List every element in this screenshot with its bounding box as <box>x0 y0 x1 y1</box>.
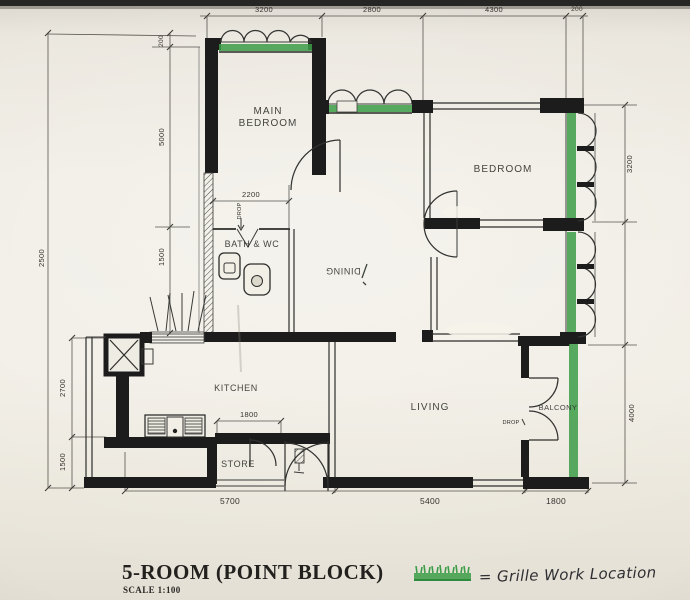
label-bath-wc: BATH & WC <box>225 239 280 249</box>
dim-top-2800: 2800 <box>363 5 381 14</box>
plan-title: 5-ROOM (POINT BLOCK) <box>122 560 384 584</box>
drop-marker-bath: DROP <box>237 202 244 230</box>
room-balcony: BALCONY DROP <box>503 342 578 477</box>
photo-edge <box>0 0 690 9</box>
label-kitchen: KITCHEN <box>214 383 258 393</box>
legend-text: = Grille Work Location <box>479 563 657 586</box>
dim-bottom-5400: 5400 <box>420 496 440 506</box>
dim-top-3200: 3200 <box>255 5 273 14</box>
dimension-left-inner: 200 5000 1500 <box>152 30 200 336</box>
grille-strip-main-bedroom <box>219 44 312 51</box>
dimension-1800-kitchen: 1800 <box>214 410 284 433</box>
dim-left-2700: 2700 <box>58 379 67 397</box>
room-store: STORE <box>207 438 328 491</box>
label-drop-bath: DROP <box>237 202 243 219</box>
dim-bottom-5700: 5700 <box>220 496 240 506</box>
dim-left-1500: 1500 <box>157 248 166 266</box>
handwritten-check <box>362 264 367 285</box>
floorplan-drawing: 3200 2800 4300 200 2500 200 5000 1500 27… <box>0 0 690 600</box>
dim-top-200: 200 <box>571 6 583 13</box>
grille-legend-swatch <box>414 565 471 580</box>
casement-windows-bedroom <box>577 113 596 221</box>
dim-top-4300: 4300 <box>485 5 503 14</box>
laundry-poles <box>150 291 206 331</box>
plan-scale: SCALE 1:100 <box>123 585 181 595</box>
dining-window <box>316 90 412 114</box>
label-bedroom: BEDROOM <box>474 164 533 175</box>
label-drop-balcony: DROP <box>503 420 520 426</box>
dimension-right: 3200 4000 <box>583 102 637 486</box>
kitchen-sink <box>145 415 205 437</box>
legend: = Grille Work Location <box>414 563 657 586</box>
grille-strip-bedroom <box>567 113 576 222</box>
entrance-double-door <box>285 441 328 491</box>
room-dining: DINING <box>316 90 412 285</box>
title-block: 5-ROOM (POINT BLOCK) SCALE 1:100 <box>122 560 384 595</box>
main-bedroom-window <box>219 31 312 53</box>
floorplan-photo: 3200 2800 4300 200 2500 200 5000 1500 27… <box>0 0 690 600</box>
dimension-left-lower: 2700 1500 <box>58 335 106 491</box>
label-main-bedroom-1: MAIN <box>254 106 283 117</box>
whiteout-smudge-2 <box>442 206 482 218</box>
drop-marker-balcony: DROP <box>503 419 525 426</box>
dim-2200: 2200 <box>242 190 260 199</box>
service-yard-window <box>140 291 206 343</box>
whiteout-smudge <box>445 322 515 338</box>
dim-1800: 1800 <box>240 410 258 419</box>
label-living: LIVING <box>411 402 450 413</box>
riser-symbol <box>294 449 304 473</box>
right-facade <box>560 98 596 477</box>
dim-left-1500b: 1500 <box>58 453 67 471</box>
label-dining: DINING <box>325 266 360 276</box>
label-main-bedroom-2: BEDROOM <box>239 118 298 129</box>
room-bedroom: BEDROOM <box>412 98 584 257</box>
dimension-2200: 2200 <box>210 185 292 228</box>
dim-left-5000: 5000 <box>157 128 166 146</box>
dim-right-3200: 3200 <box>625 155 634 173</box>
dim-bottom-1800: 1800 <box>546 496 566 506</box>
service-duct <box>204 173 213 333</box>
wash-basin <box>219 253 240 279</box>
dim-left-2500: 2500 <box>37 249 46 267</box>
dim-right-4000: 4000 <box>627 404 636 422</box>
grille-strip-bedroom-lower <box>567 232 576 332</box>
dim-left-200: 200 <box>158 35 165 47</box>
label-store: STORE <box>221 459 255 469</box>
casement-windows-bedroom-lower <box>577 232 596 337</box>
label-balcony: BALCONY <box>539 403 578 412</box>
